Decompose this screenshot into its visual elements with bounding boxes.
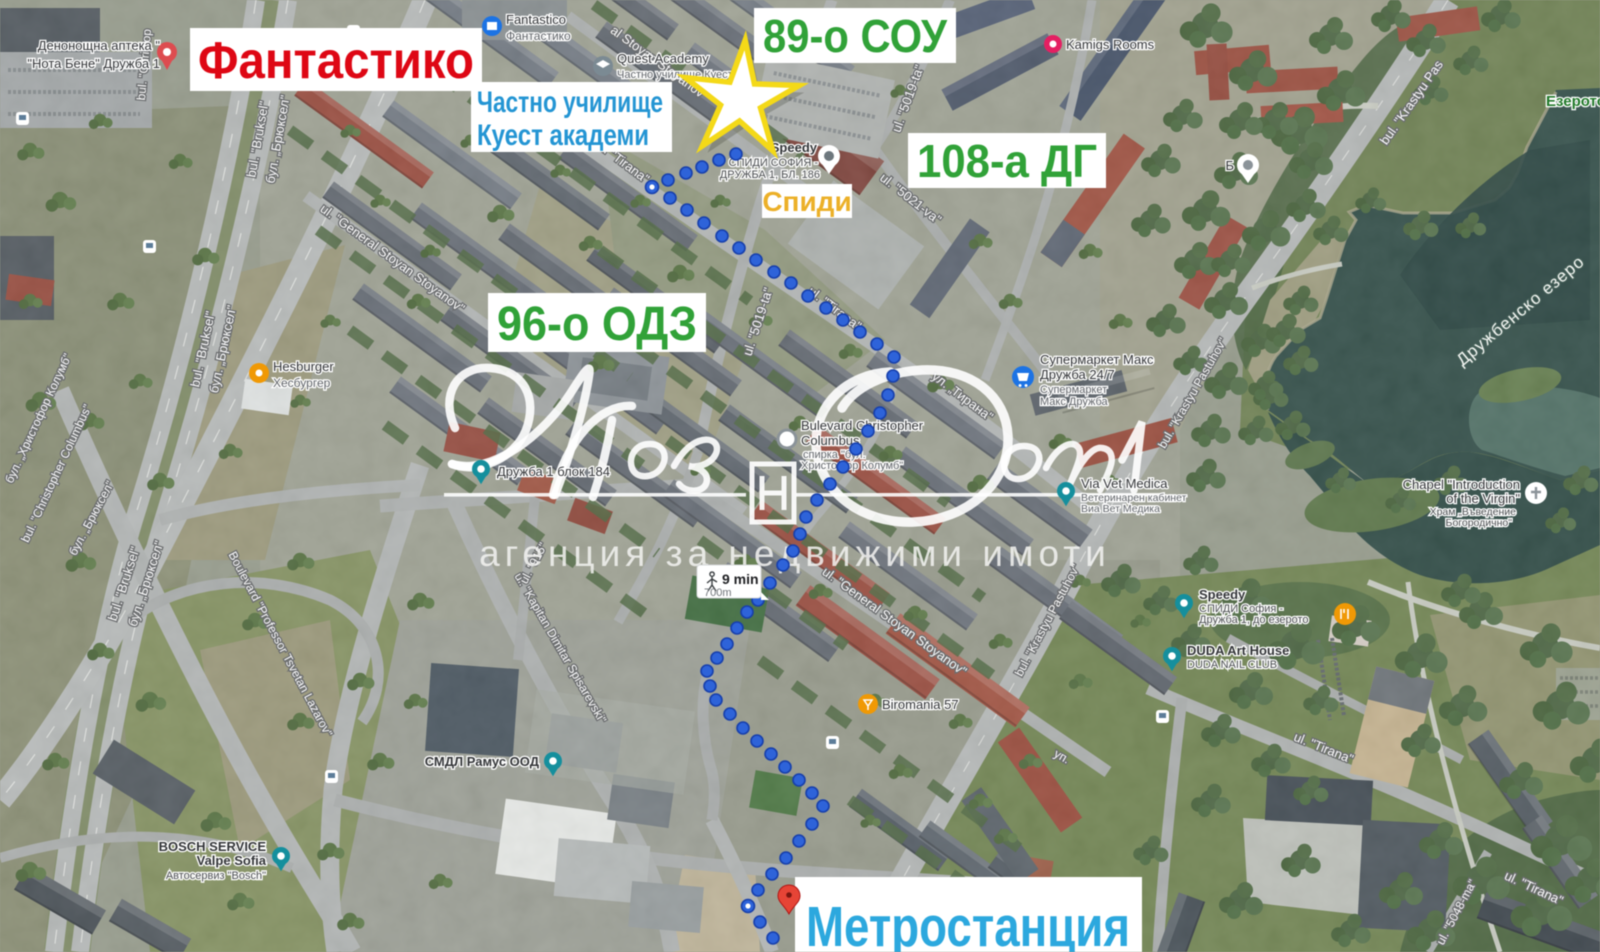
svg-text:Денонощна аптека ": Денонощна аптека " — [38, 38, 161, 53]
svg-text:Супермаркет Макс: Супермаркет Макс — [1040, 352, 1154, 367]
svg-text:Biromania 57: Biromania 57 — [882, 697, 959, 712]
svg-text:Speedy: Speedy — [771, 140, 818, 155]
svg-text:9 min: 9 min — [722, 571, 759, 587]
svg-text:СПИДИ СОФИЯ -: СПИДИ СОФИЯ - — [729, 157, 819, 169]
svg-text:Хесбургер: Хесбургер — [273, 376, 331, 390]
svg-text:Езерото Д: Езерото Д — [1546, 93, 1600, 110]
svg-text:Chapel "Introduction: Chapel "Introduction — [1403, 477, 1520, 492]
svg-text:Куест академи: Куест академи — [477, 119, 649, 152]
svg-text:Фантастико: Фантастико — [506, 29, 571, 43]
svg-text:89-о СОУ: 89-о СОУ — [763, 10, 948, 62]
svg-text:of the Virgin": of the Virgin" — [1446, 491, 1520, 506]
svg-text:DUDA NAIL CLUB: DUDA NAIL CLUB — [1187, 659, 1277, 671]
svg-text:Quest Academy: Quest Academy — [617, 51, 709, 66]
svg-text:BOSCH SERVICE: BOSCH SERVICE — [159, 839, 267, 854]
svg-text:Kamigs Rooms: Kamigs Rooms — [1066, 37, 1155, 52]
svg-text:Виа Вет Медика: Виа Вет Медика — [1081, 503, 1160, 515]
svg-text:СМДЛ Рамус ООД: СМДЛ Рамус ООД — [425, 754, 540, 769]
svg-text:Via Vet Medica: Via Vet Medica — [1081, 476, 1168, 491]
svg-text:Макс Дружба: Макс Дружба — [1040, 396, 1108, 408]
svg-text:ДРУЖБА 1, БЛ. 186: ДРУЖБА 1, БЛ. 186 — [720, 169, 820, 181]
svg-text:96-о ОДЗ: 96-о ОДЗ — [497, 298, 697, 351]
svg-text:Богородично": Богородично" — [1446, 517, 1513, 529]
svg-text:Б: Б — [1225, 158, 1234, 173]
svg-text:Христофор Колумб": Христофор Колумб" — [801, 460, 903, 472]
svg-text:Fantastico: Fantastico — [506, 12, 566, 27]
svg-text:Дружба 1 блок 184: Дружба 1 блок 184 — [497, 464, 610, 479]
svg-text:Частно училище: Частно училище — [477, 86, 663, 119]
svg-text:Фантастико: Фантастико — [198, 32, 474, 90]
svg-text:Hesburger: Hesburger — [273, 359, 334, 374]
svg-text:108-а ДГ: 108-а ДГ — [917, 135, 1097, 187]
svg-text:Метростанция: Метростанция — [806, 895, 1130, 952]
svg-text:Speedy: Speedy — [1199, 587, 1246, 602]
svg-text:"Нота Бене" Дружба 1: "Нота Бене" Дружба 1 — [27, 56, 160, 71]
svg-text:700m: 700m — [704, 587, 732, 599]
svg-text:Дружба 24/7: Дружба 24/7 — [1040, 367, 1115, 382]
svg-text:Спиди: Спиди — [762, 186, 851, 217]
svg-text:Дружба 1, до езерото: Дружба 1, до езерото — [1199, 614, 1309, 626]
svg-text:Автосервиз "Bosch": Автосервиз "Bosch" — [166, 870, 266, 882]
svg-text:Valpe Sofia: Valpe Sofia — [197, 853, 267, 868]
svg-text:Супермаркет: Супермаркет — [1040, 384, 1107, 396]
svg-text:DUDA Art House: DUDA Art House — [1187, 643, 1289, 658]
